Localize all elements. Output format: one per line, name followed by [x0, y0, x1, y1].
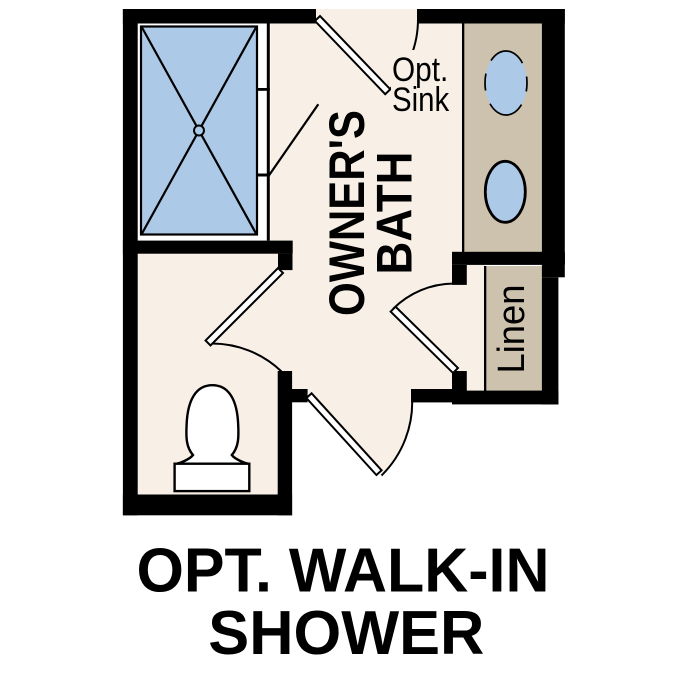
svg-text:OPT. WALK-IN: OPT. WALK-IN: [137, 537, 550, 606]
svg-text:BATH: BATH: [367, 152, 423, 275]
svg-text:Linen: Linen: [491, 285, 533, 374]
svg-text:SHOWER: SHOWER: [208, 599, 484, 668]
svg-text:Sink: Sink: [392, 81, 450, 119]
